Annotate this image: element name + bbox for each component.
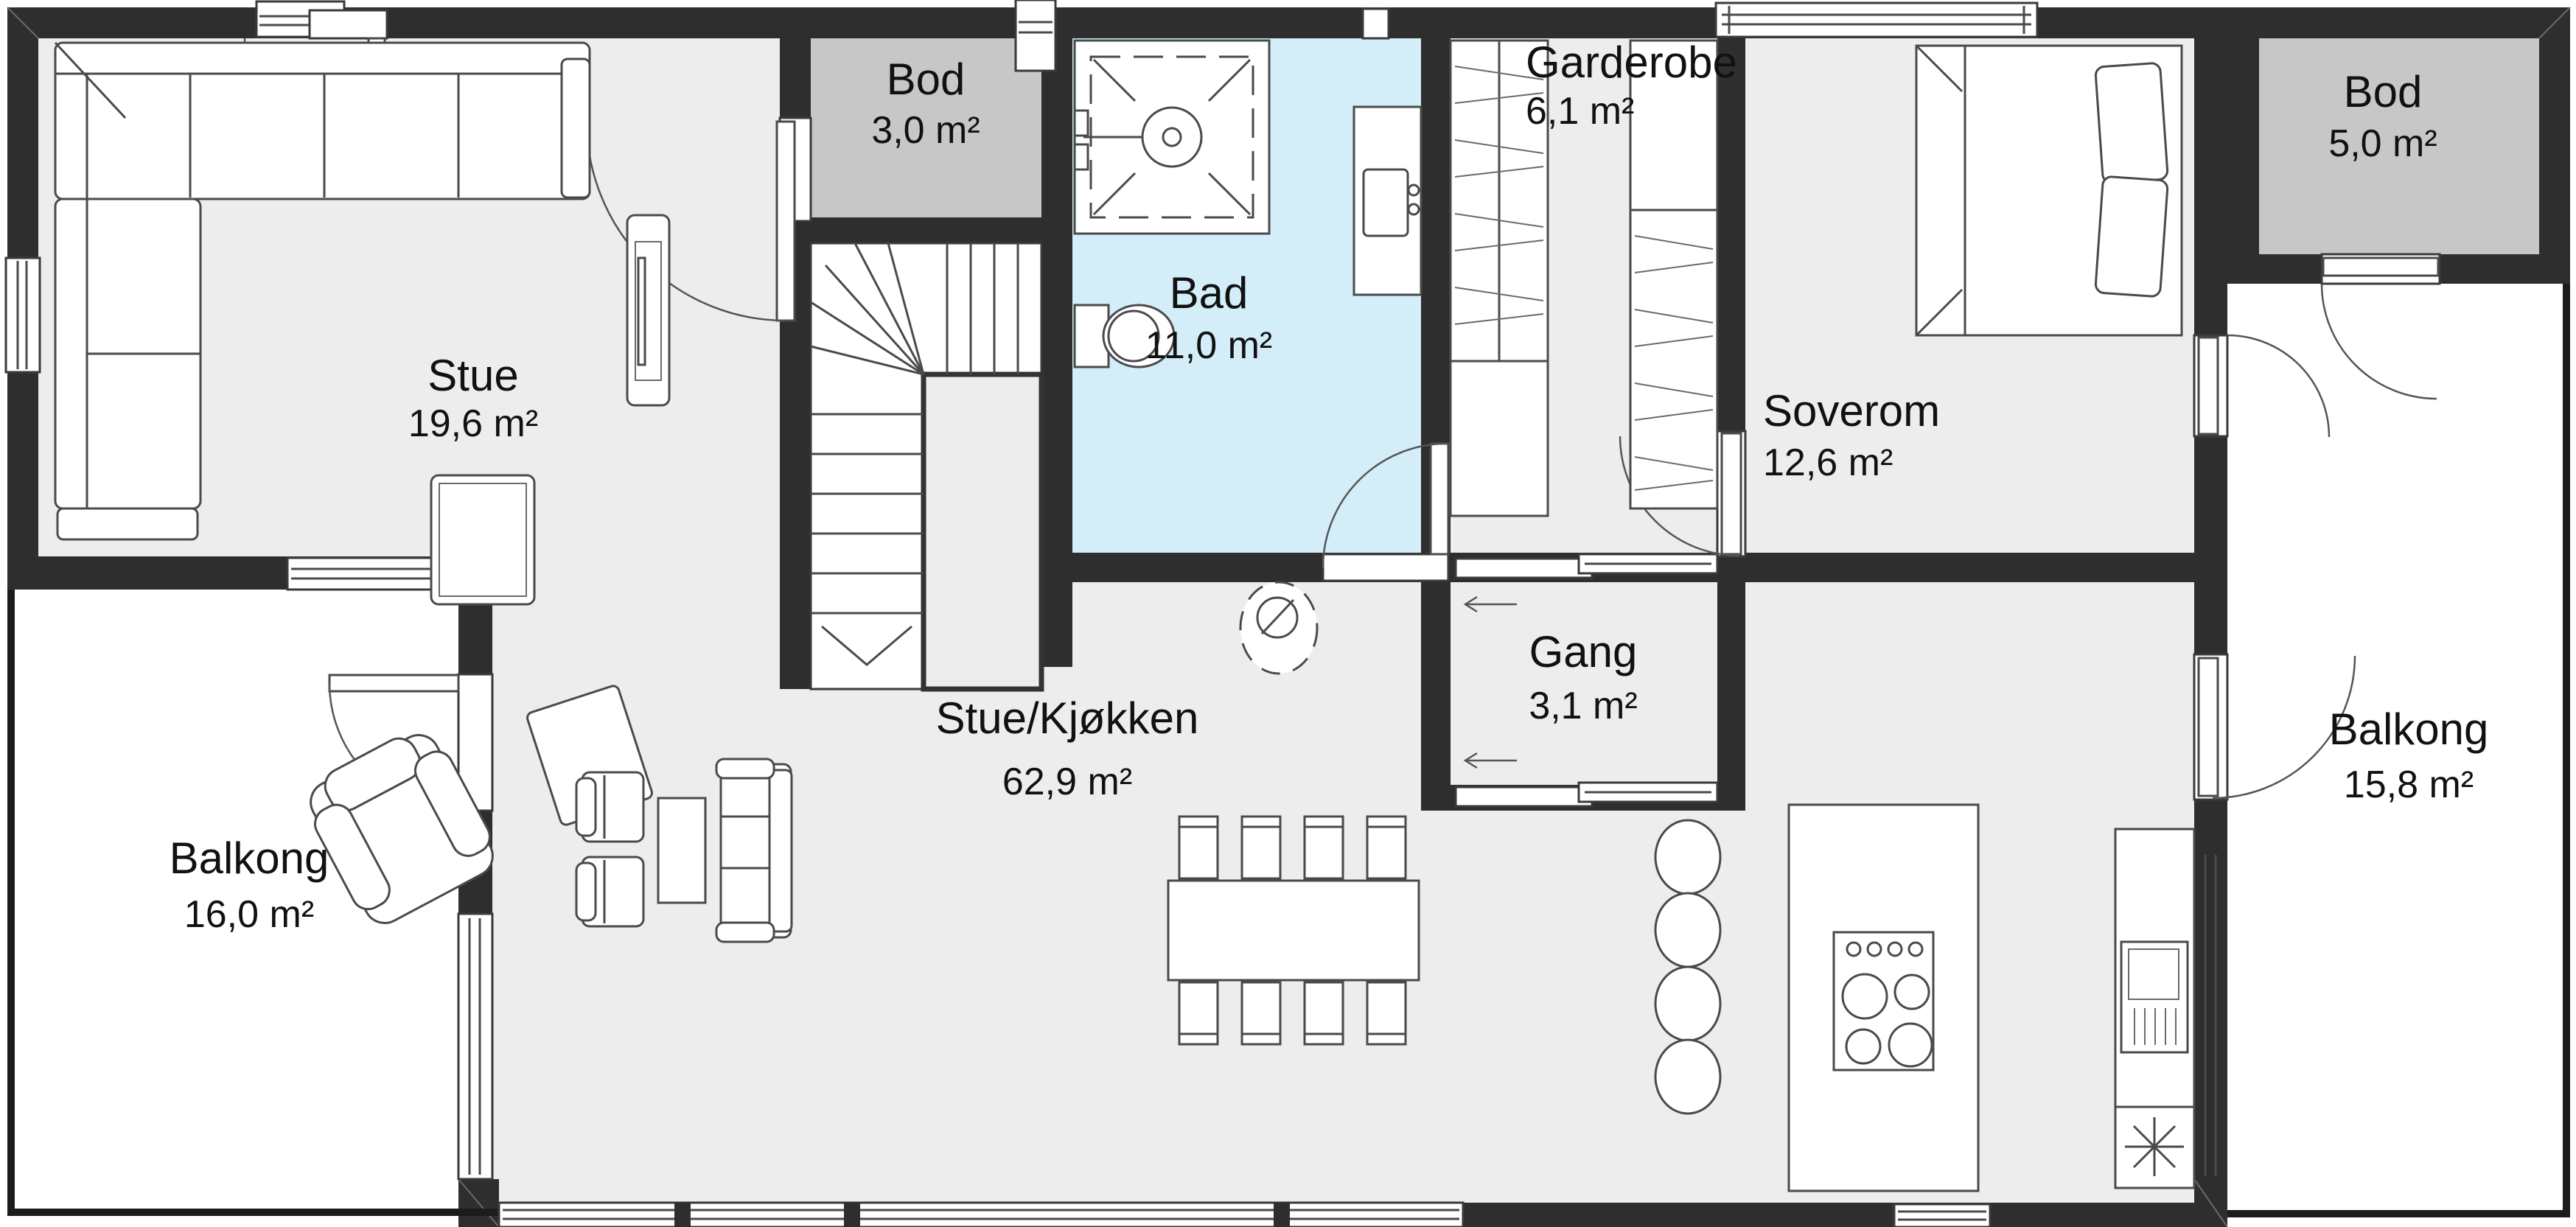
pillow-icon xyxy=(2095,176,2168,297)
vent-top-bad xyxy=(1016,0,1055,71)
floorplan-page: Stue 19,6 m² Bod 3,0 m² Bad 11,0 m² Gard… xyxy=(0,0,2576,1227)
bathroom-vanity xyxy=(1354,107,1421,295)
room-label-balkong-right: Balkong xyxy=(2329,705,2489,754)
room-area-balkong-left: 16,0 m² xyxy=(184,893,314,936)
staircase xyxy=(811,243,1041,689)
tv-icon xyxy=(638,258,645,365)
coffee-table xyxy=(431,475,534,604)
room-label-gang: Gang xyxy=(1529,627,1638,677)
floorplan-drawing: Stue 19,6 m² Bod 3,0 m² Bad 11,0 m² Gard… xyxy=(0,0,2576,1227)
room-label-garderobe: Garderobe xyxy=(1526,38,1737,87)
room-label-bod-3: Bod xyxy=(887,55,966,104)
window-top-soverom xyxy=(1716,3,2037,37)
room-label-stue-kjokken: Stue/Kjøkken xyxy=(936,693,1199,743)
oven-icon xyxy=(2121,942,2188,1052)
wardrobe-right xyxy=(1630,41,1717,508)
chair-icon xyxy=(1305,982,1343,1044)
room-area-bod-3: 3,0 m² xyxy=(871,109,980,152)
dining-table xyxy=(1168,881,1419,980)
room-area-bod-5: 5,0 m² xyxy=(2328,122,2437,165)
tv-bench xyxy=(627,215,669,405)
sofa-three-seat xyxy=(716,759,792,942)
room-area-gang: 3,1 m² xyxy=(1529,685,1637,727)
room-label-soverom: Soverom xyxy=(1763,386,1940,436)
room-label-stue: Stue xyxy=(427,351,518,400)
room-label-bad: Bad xyxy=(1170,268,1249,318)
window-bottom-kitchen xyxy=(1894,1204,1990,1227)
chair-icon xyxy=(1305,817,1343,878)
shower xyxy=(1075,41,1269,234)
room-label-balkong-left: Balkong xyxy=(170,833,329,883)
room-area-stue-kjokken: 62,9 m² xyxy=(1002,761,1132,803)
chair-icon xyxy=(1367,982,1406,1044)
lounge-armchair xyxy=(576,857,643,926)
chair-icon xyxy=(1179,817,1218,878)
window-band-bottom xyxy=(499,1203,1463,1227)
lounge-armchair xyxy=(576,772,643,842)
window-left-stue xyxy=(6,258,40,372)
room-area-stue: 19,6 m² xyxy=(408,402,538,445)
room-area-garderobe: 6,1 m² xyxy=(1526,90,1634,133)
chair-icon xyxy=(1179,982,1218,1044)
bed xyxy=(1916,46,2182,335)
kitchen-island xyxy=(1789,805,1978,1191)
chair-icon xyxy=(1242,817,1280,878)
room-area-bad: 11,0 m² xyxy=(1145,324,1272,367)
side-table xyxy=(658,798,705,903)
room-label-bod-5: Bod xyxy=(2344,67,2423,116)
window-top-garderobe xyxy=(1363,9,1389,38)
chair-icon xyxy=(1367,817,1406,878)
room-area-soverom: 12,6 m² xyxy=(1763,441,1893,484)
fridge-freezer-icon xyxy=(2125,1117,2184,1176)
window-balcony-left-wall xyxy=(458,914,492,1179)
shower-mixer-icon xyxy=(1075,111,1088,136)
pillow-icon xyxy=(2095,63,2168,183)
chair-icon xyxy=(1242,982,1280,1044)
cooktop-icon xyxy=(1834,932,1933,1070)
vent-chimney-icon xyxy=(1240,582,1317,674)
kitchen-counter xyxy=(2115,829,2194,1188)
room-area-balkong-right: 15,8 m² xyxy=(2344,763,2474,806)
